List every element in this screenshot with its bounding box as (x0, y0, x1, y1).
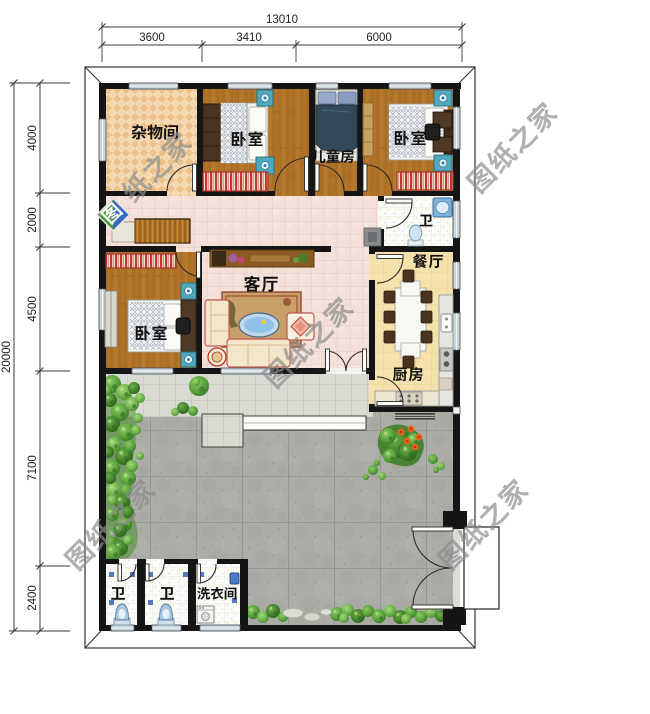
svg-text:2400: 2400 (27, 585, 39, 611)
svg-text:3600: 3600 (139, 32, 165, 44)
svg-text:13010: 13010 (266, 14, 298, 26)
svg-text:4500: 4500 (27, 296, 39, 322)
svg-text:3410: 3410 (236, 32, 262, 44)
svg-text:6000: 6000 (366, 32, 392, 44)
svg-text:20000: 20000 (1, 341, 13, 373)
svg-text:7100: 7100 (27, 455, 39, 481)
svg-text:4000: 4000 (27, 125, 39, 151)
svg-text:2000: 2000 (27, 207, 39, 233)
